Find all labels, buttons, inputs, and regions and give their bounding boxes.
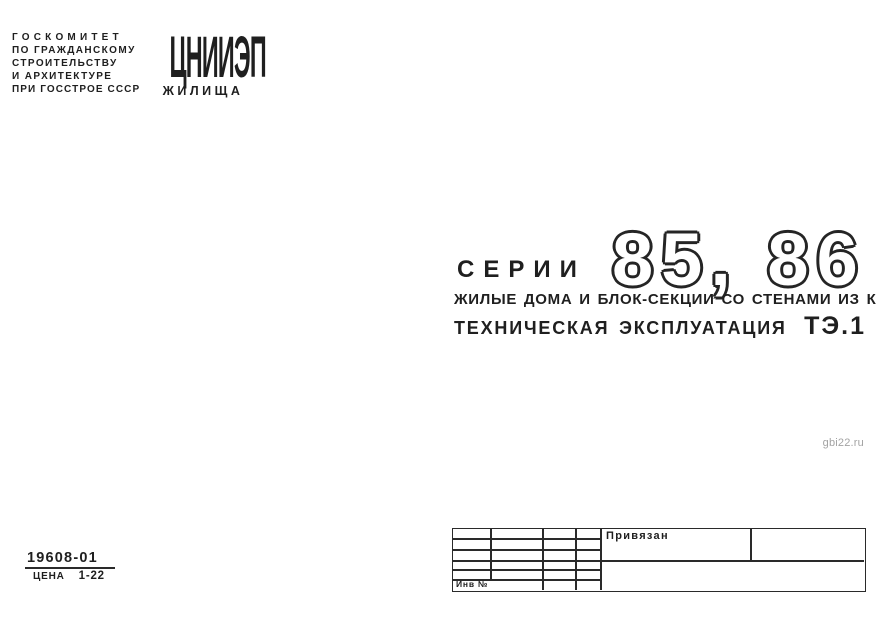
document-cover-page: ГОСКОМИТЕТ ПО ГРАЖДАНСКОМУ СТРОИТЕЛЬСТВУ… [0, 0, 876, 629]
stamp-hline [453, 549, 601, 551]
stamp-inventory-label: Инв № [456, 579, 488, 589]
title-block-stamp: Привязан Инв № [452, 528, 866, 592]
publisher-line: ПО ГРАЖДАНСКОМУ [12, 44, 140, 57]
publication-code: 19608-01 [27, 550, 98, 566]
logo-zhilishcha-text: ЖИЛИЩА [160, 84, 246, 98]
publisher-line: ПРИ ГОССТРОЕ СССР [12, 83, 140, 96]
stamp-hline [453, 560, 864, 562]
doc-type-row: ТЕХНИЧЕСКАЯ ЭКСПЛУАТАЦИЯ ТЭ.1 [454, 312, 866, 341]
cniiep-logo: ЦНИИЭП ЖИЛИЩА [160, 30, 246, 96]
stamp-hline [453, 569, 601, 571]
stamp-attached-label: Привязан [606, 530, 669, 542]
series-numbers: 85, 86 [612, 223, 866, 297]
price-label: ЦЕНА [33, 571, 65, 582]
stamp-vline [750, 529, 752, 560]
doc-type-label: ТЕХНИЧЕСКАЯ ЭКСПЛУАТАЦИЯ [454, 318, 787, 339]
price-value: 1-22 [79, 570, 105, 582]
stamp-vline [490, 529, 492, 580]
stamp-hline [453, 538, 601, 540]
site-watermark: gbi22.ru [823, 437, 864, 449]
document-subtitle: ЖИЛЫЕ ДОМА И БЛОК-СЕКЦИИ СО СТЕНАМИ ИЗ К… [454, 291, 876, 308]
publisher-line: ГОСКОМИТЕТ [12, 31, 140, 44]
publisher-line: И АРХИТЕКТУРЕ [12, 70, 140, 83]
publisher-block: ГОСКОМИТЕТ ПО ГРАЖДАНСКОМУ СТРОИТЕЛЬСТВУ… [12, 31, 140, 96]
logo-cniiep-text: ЦНИИЭП [169, 30, 236, 89]
doc-code-label: ТЭ.1 [804, 312, 866, 341]
series-label: СЕРИИ [457, 256, 586, 284]
code-underline [25, 567, 115, 569]
publisher-line: СТРОИТЕЛЬСТВУ [12, 57, 140, 70]
price-line: ЦЕНА1-22 [33, 570, 105, 582]
